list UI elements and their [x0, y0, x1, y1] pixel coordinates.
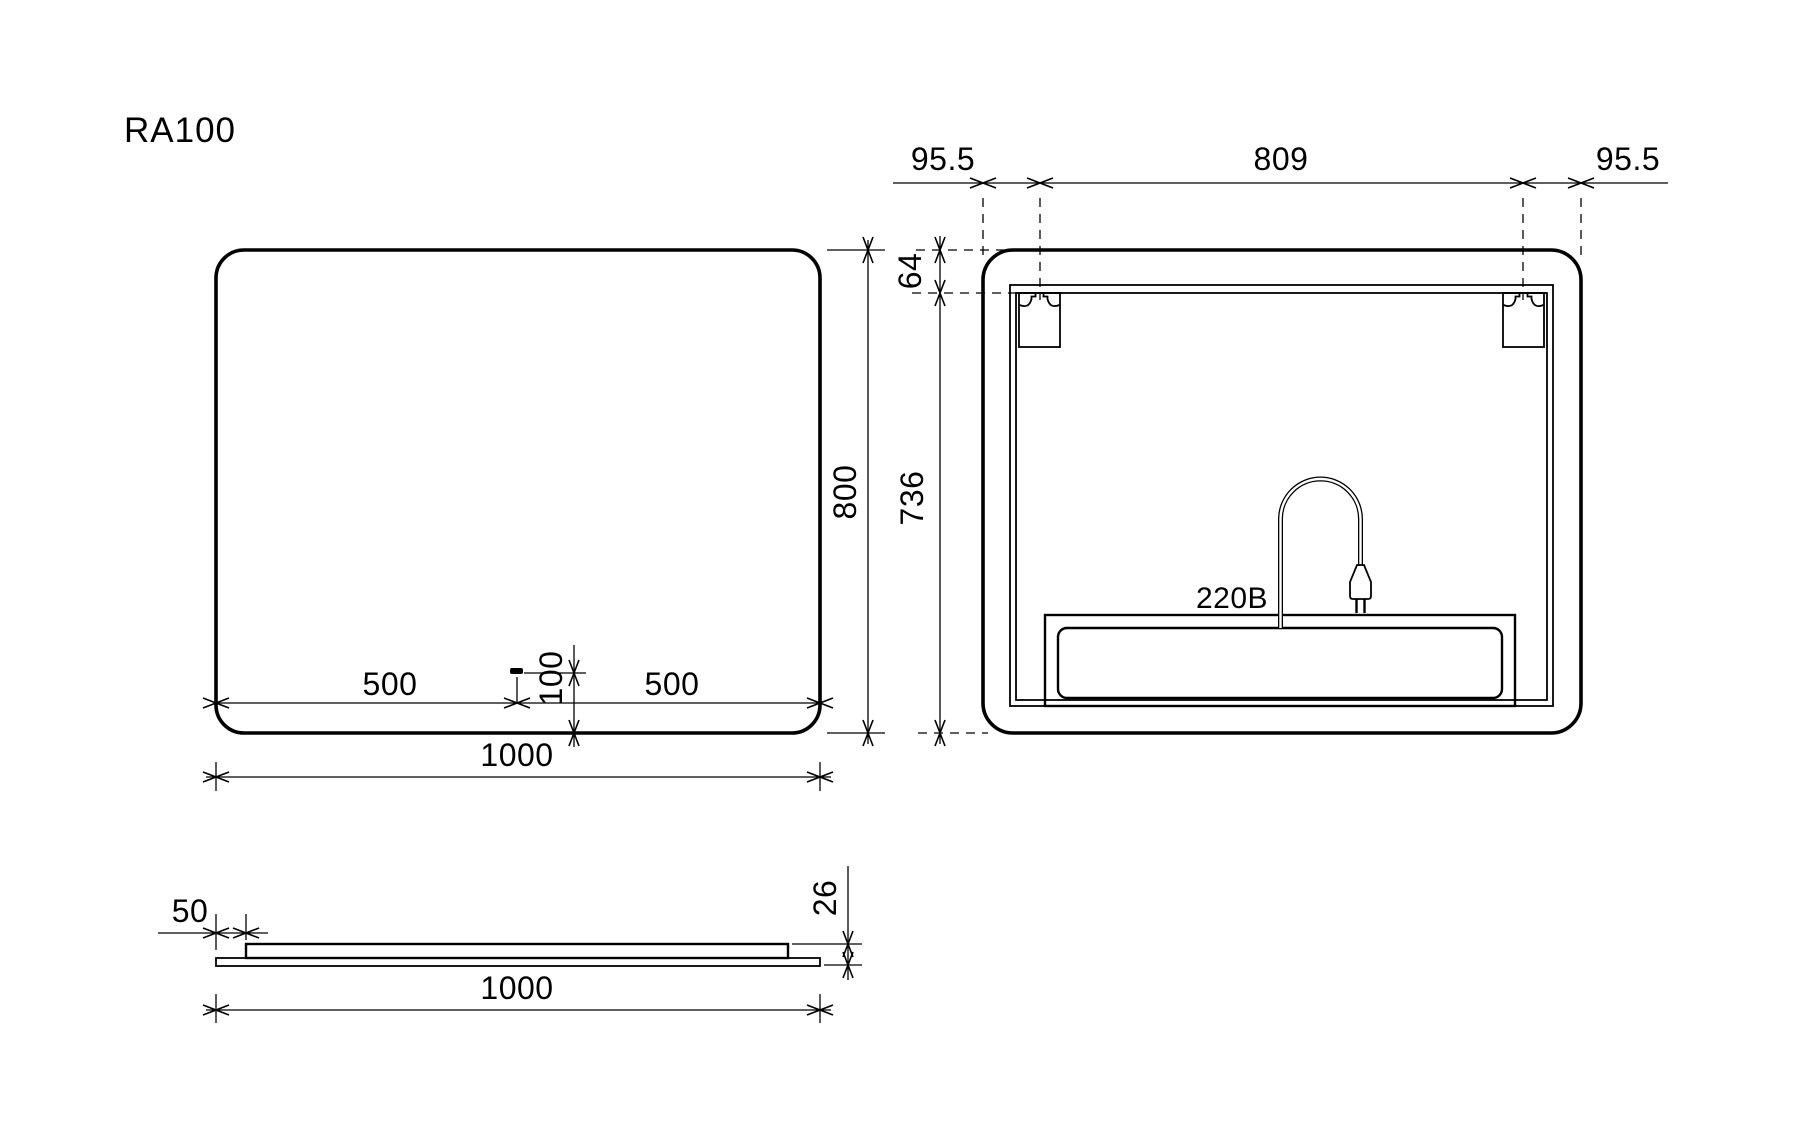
bracket-body [1503, 293, 1544, 347]
dim-label-800: 800 [827, 465, 863, 520]
dim-back-top: 95.5 809 95.5 [893, 141, 1668, 300]
back-view: 220B 95.5 809 95.5 64 736 [892, 141, 1668, 746]
mirror-front-outline [216, 250, 820, 733]
mirror-glass-profile [216, 958, 820, 966]
dim-label-95-5-right: 95.5 [1596, 141, 1660, 177]
touch-sensor-mark [510, 668, 523, 674]
dim-front-width: 1000 [203, 737, 833, 791]
dim-label-100: 100 [533, 651, 569, 706]
dim-side-width: 1000 [203, 970, 833, 1023]
technical-drawing-page: RA100 500 500 100 [0, 0, 1800, 1126]
dim-back-left: 64 736 [892, 236, 1016, 746]
front-view: 500 500 100 1000 800 [203, 237, 885, 791]
dim-front-height: 800 [827, 237, 885, 746]
mounting-bracket-left [1019, 293, 1060, 347]
side-view: 50 26 1000 [158, 866, 862, 1023]
backing-panel-profile [246, 944, 788, 958]
dim-label-1000-side: 1000 [480, 970, 553, 1006]
back-panel-inner [1016, 293, 1547, 700]
cord-core [1281, 479, 1361, 628]
dim-label-26: 26 [807, 880, 843, 917]
back-panel-outer [1010, 285, 1553, 706]
bracket-body [1019, 293, 1060, 347]
dim-label-50: 50 [172, 893, 209, 929]
driver-box-inner [1058, 628, 1502, 698]
mirror-back-outline [983, 250, 1581, 733]
dim-label-95-5-left: 95.5 [911, 141, 975, 177]
dim-label-736: 736 [894, 471, 930, 526]
dim-label-500-right: 500 [645, 666, 700, 702]
dim-label-1000: 1000 [480, 737, 553, 773]
dim-side-thickness: 26 [792, 866, 862, 980]
voltage-label: 220B [1196, 582, 1268, 615]
cord-outline [1281, 479, 1361, 628]
dim-label-500-left: 500 [363, 666, 418, 702]
dim-side-inset: 50 [158, 893, 268, 950]
dim-label-64: 64 [892, 253, 928, 290]
plug-body [1350, 565, 1371, 599]
model-title: RA100 [124, 111, 236, 150]
mounting-bracket-right [1503, 293, 1544, 347]
dim-label-809: 809 [1254, 141, 1309, 177]
power-cord [1281, 479, 1372, 628]
mirror-dimension-drawing: RA100 500 500 100 [0, 0, 1800, 1126]
